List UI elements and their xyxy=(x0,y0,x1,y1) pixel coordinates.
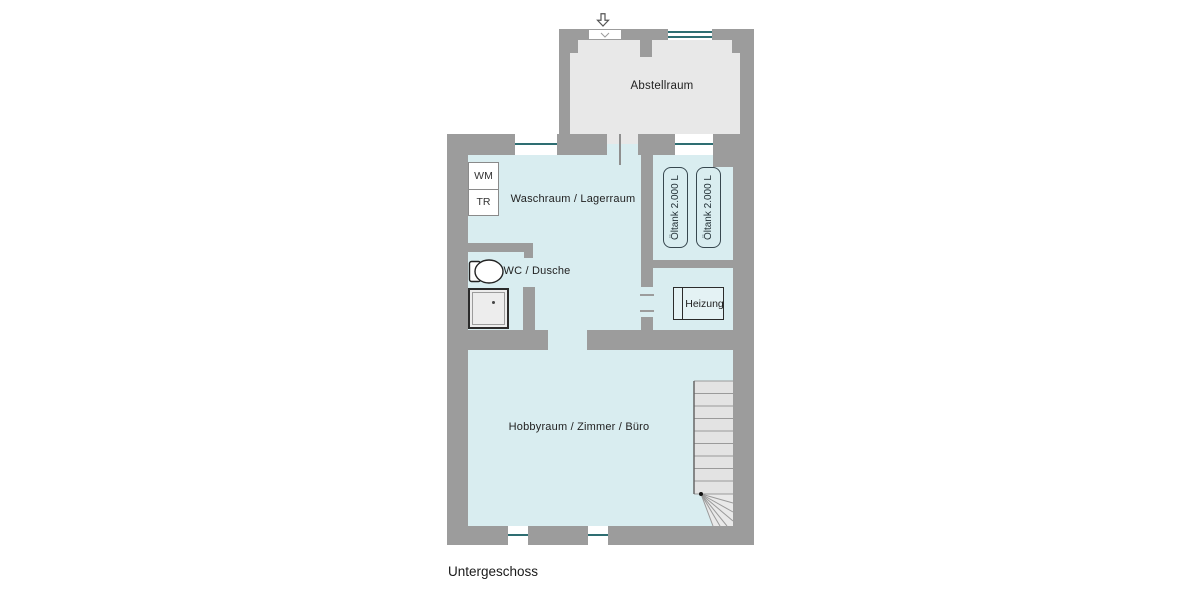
wall-segment xyxy=(523,287,535,330)
heating-unit: Heizung xyxy=(673,287,724,320)
door-opening xyxy=(607,134,638,144)
room-label-waschraum: Waschraum / Lagerraum xyxy=(511,193,636,205)
window-glass-line xyxy=(515,143,557,145)
wall-segment xyxy=(559,40,570,134)
toilet-icon xyxy=(468,257,505,286)
room-label-hobbyraum: Hobbyraum / Zimmer / Büro xyxy=(509,421,650,433)
window xyxy=(668,29,712,40)
window xyxy=(588,526,608,545)
entrance-door xyxy=(588,29,622,40)
wall-pilaster xyxy=(640,40,652,57)
shower-tray xyxy=(468,288,509,329)
room-label-abstellraum: Abstellraum xyxy=(631,80,694,92)
window xyxy=(515,134,557,155)
wall-segment xyxy=(653,260,733,268)
heizung-label: Heizung xyxy=(686,288,723,319)
heating-unit-line xyxy=(682,288,683,319)
window-glass-line xyxy=(675,143,713,145)
oil-tank-1-label: Öltank 2.000 L xyxy=(670,175,681,240)
door-opening xyxy=(607,144,638,155)
dryer: TR xyxy=(469,189,498,216)
stair-winder-pivot xyxy=(699,492,703,496)
dryer-label: TR xyxy=(477,196,491,208)
door-jamb-tick xyxy=(640,294,654,296)
wall-segment xyxy=(733,155,754,526)
washer-dryer-unit: WM TR xyxy=(468,162,499,216)
wall-pilaster xyxy=(570,40,578,53)
oil-tank-2-label: Öltank 2.000 L xyxy=(703,175,714,240)
window-glass-line xyxy=(588,534,608,536)
oil-tank-1: Öltank 2.000 L xyxy=(663,167,688,248)
window xyxy=(675,134,713,155)
floor-title: Untergeschoss xyxy=(448,564,538,579)
window xyxy=(508,526,528,545)
window-glass-line xyxy=(668,31,712,33)
floorplan-canvas: WM TR Öltank 2.000 L Öltank 2.000 L Heiz… xyxy=(0,0,1200,600)
staircase xyxy=(693,380,734,526)
toilet-bowl xyxy=(475,260,503,283)
door-jamb-tick xyxy=(640,310,654,312)
wall-pilaster xyxy=(732,40,740,53)
wall-segment xyxy=(468,243,533,252)
shower-tray-inner xyxy=(472,292,505,325)
door-swing-icon xyxy=(600,32,610,38)
wall-segment xyxy=(468,330,548,350)
wall-segment xyxy=(641,155,653,287)
door-leaf-line xyxy=(619,134,621,165)
stair-run xyxy=(694,381,733,494)
washing-machine: WM xyxy=(469,163,498,189)
wall-segment xyxy=(524,252,533,258)
wall-segment xyxy=(587,330,733,350)
window-glass-line xyxy=(508,534,528,536)
window-glass-line xyxy=(668,36,712,38)
wall-segment xyxy=(740,40,754,134)
wall-pilaster xyxy=(713,155,733,167)
wall-segment xyxy=(641,317,653,330)
entrance-arrow-down-icon xyxy=(596,13,610,27)
wall-segment xyxy=(447,155,468,545)
oil-tank-2: Öltank 2.000 L xyxy=(696,167,721,248)
washing-machine-label: WM xyxy=(474,170,493,182)
room-label-wc-dusche: WC / Dusche xyxy=(504,265,571,277)
